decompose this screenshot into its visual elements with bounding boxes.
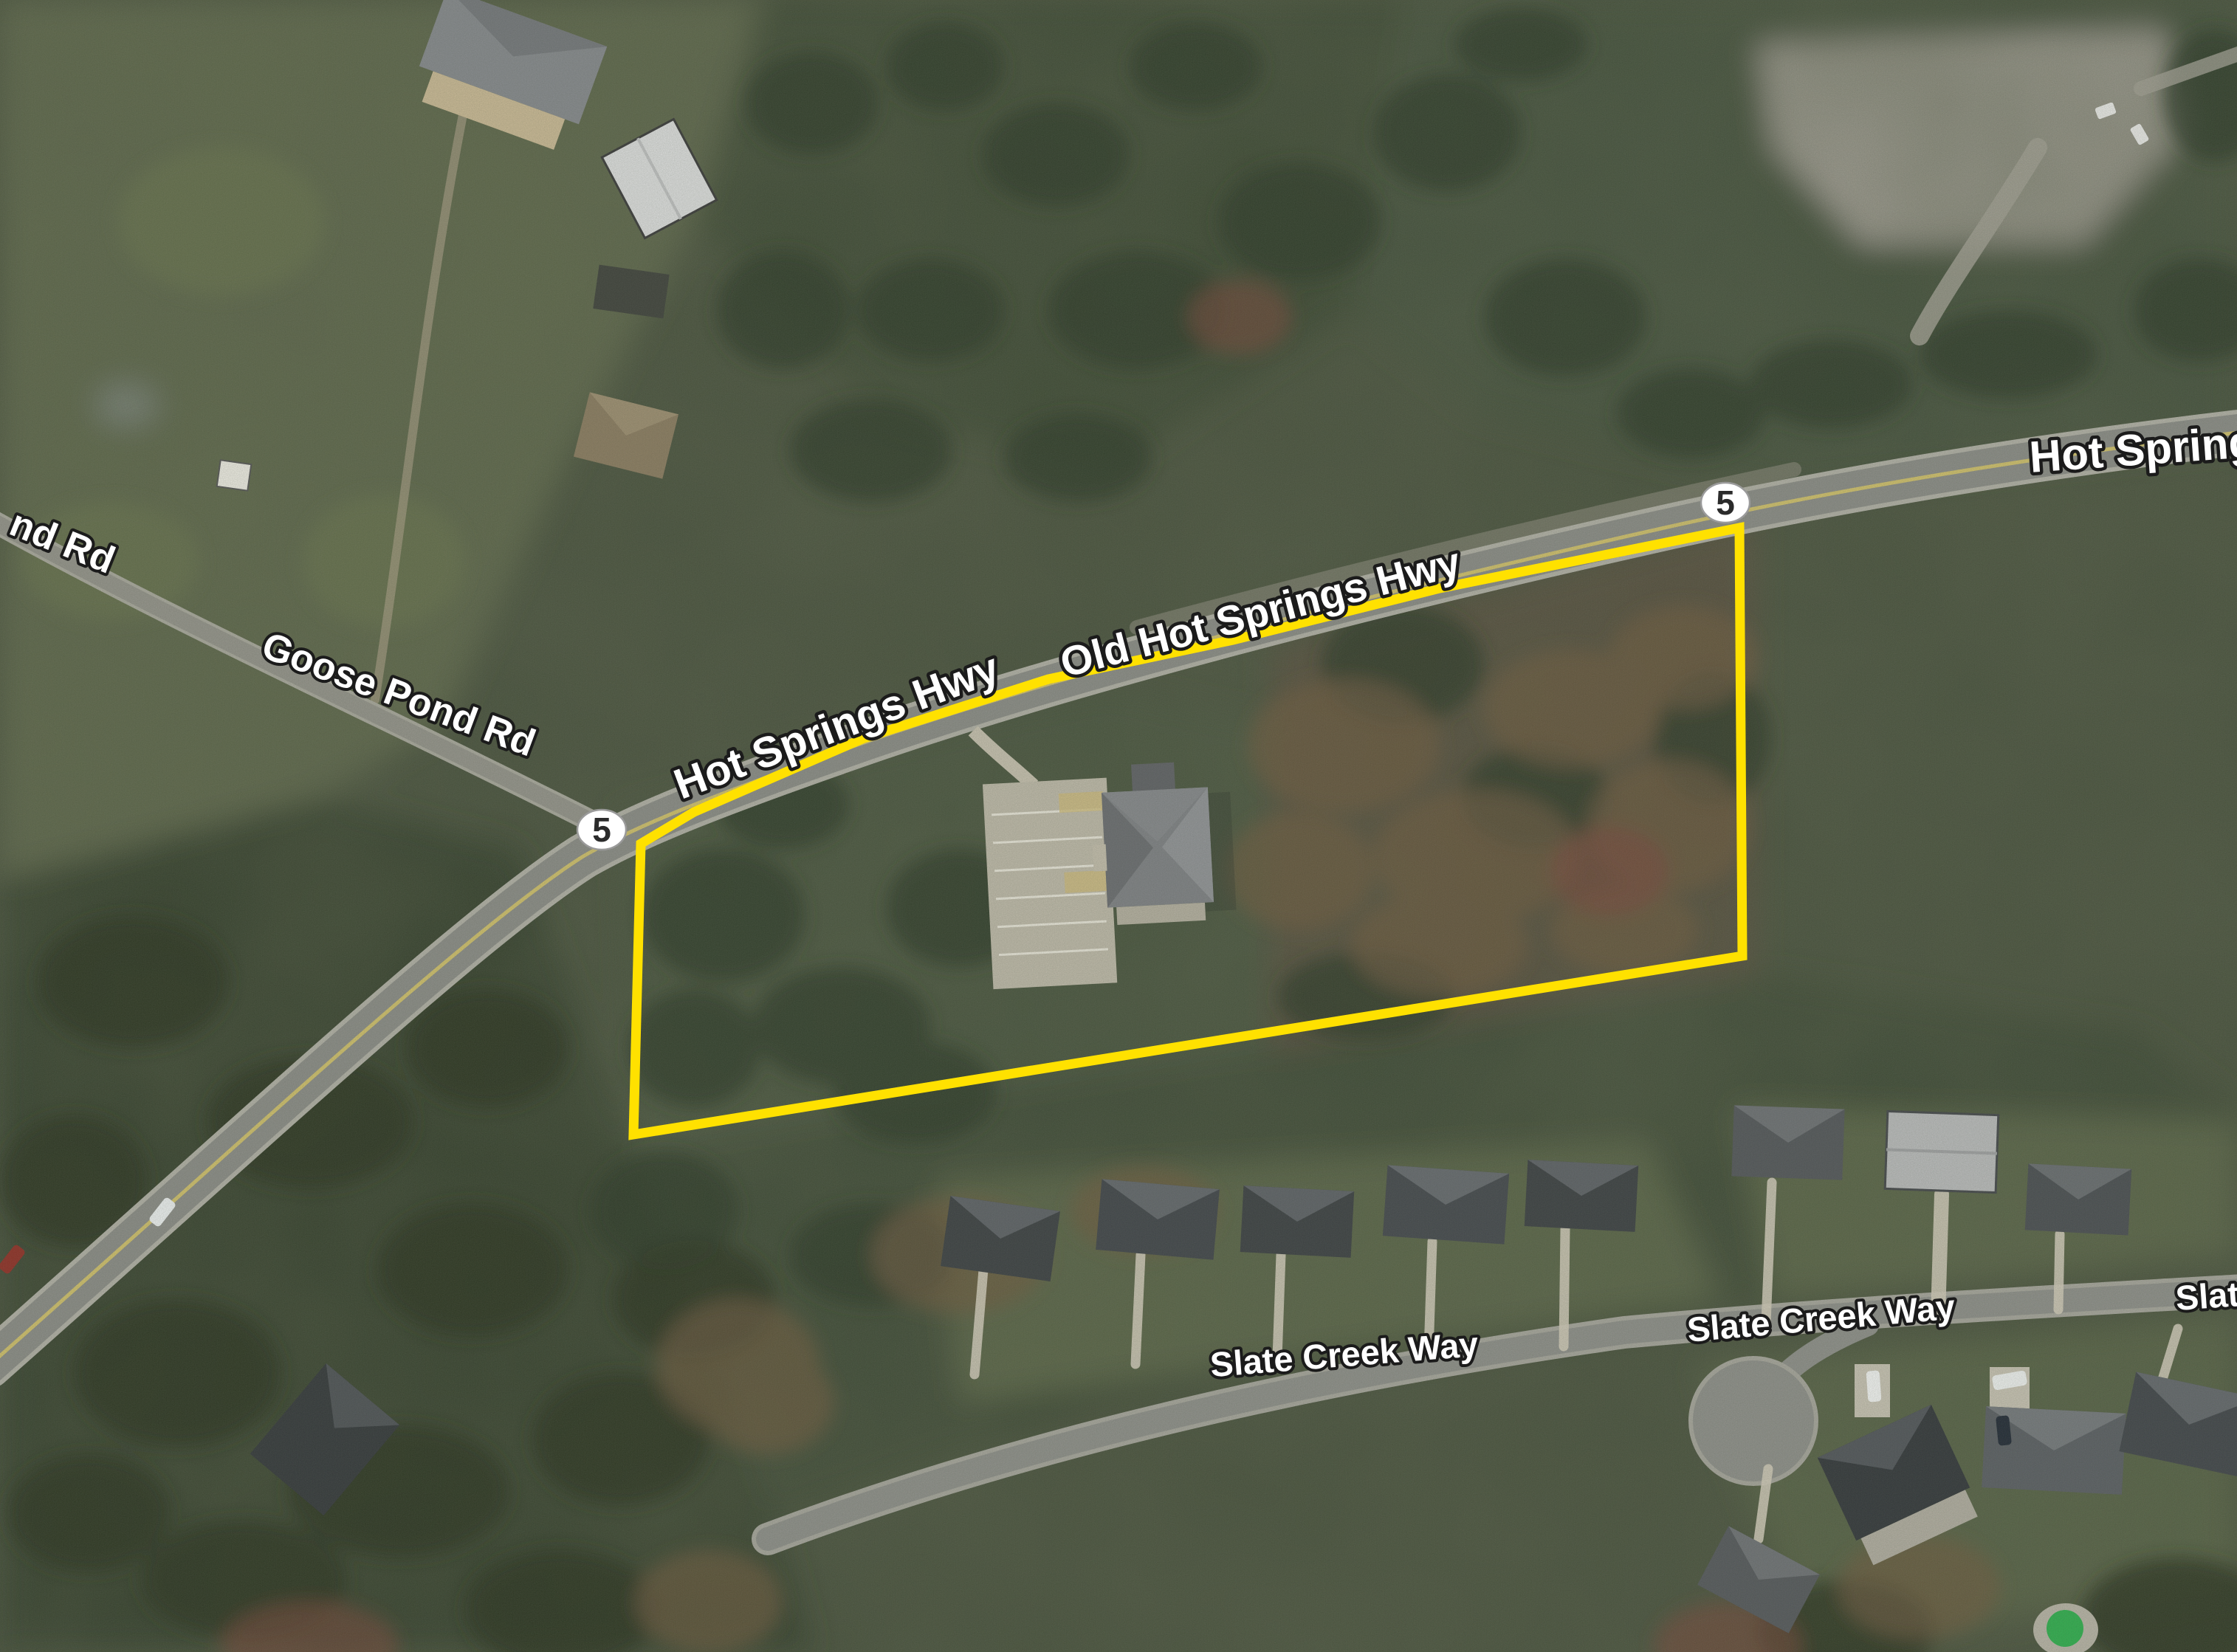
- route-number: 5: [1716, 483, 1735, 522]
- noise-overlay-light: [0, 0, 2237, 1652]
- route-5-shield-icon: 5: [1701, 483, 1750, 523]
- route-number: 5: [592, 810, 611, 849]
- screenshot-root: Hot Springs Old Hot Springs Hwy Hot Spri…: [0, 0, 2237, 1652]
- road-label-slate-partial: Slat: [2174, 1274, 2237, 1318]
- satellite-map-canvas[interactable]: Hot Springs Old Hot Springs Hwy Hot Spri…: [0, 0, 2237, 1652]
- route-5-shield-icon: 5: [577, 810, 626, 850]
